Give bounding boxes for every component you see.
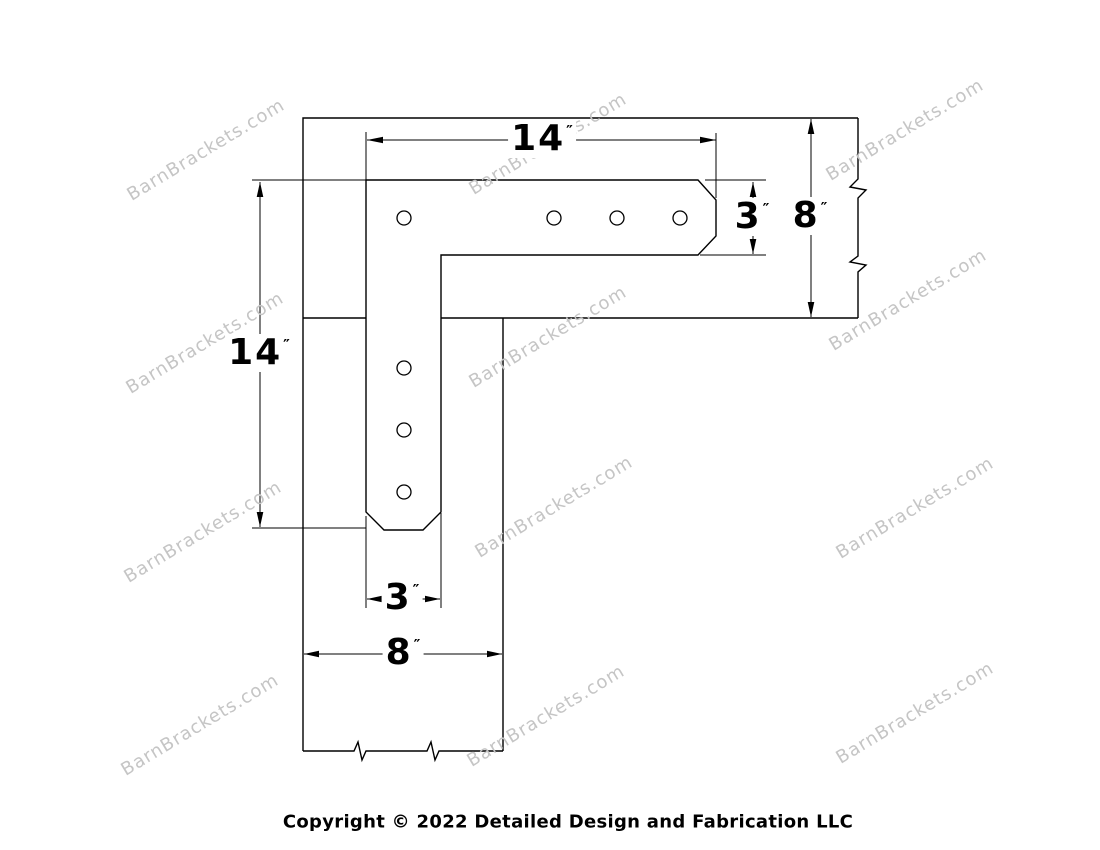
inch-mark: ″ (414, 636, 421, 654)
dim-label-right-beam-depth: 8″ (790, 197, 831, 235)
arrowhead (808, 302, 815, 317)
dim-label-bottom-beam-width: 8″ (383, 634, 424, 672)
dim-label-bottom-arm-width: 3″ (382, 579, 423, 617)
arrowhead (750, 182, 757, 197)
copyright-text: Copyright © 2022 Detailed Design and Fab… (283, 812, 853, 833)
bolt-hole (673, 211, 687, 225)
arrowhead (808, 119, 815, 134)
dim-value: 14 (511, 118, 565, 159)
inch-mark: ″ (413, 581, 420, 599)
dim-value: 14 (228, 332, 282, 373)
bolt-hole (397, 485, 411, 499)
arrowhead (367, 137, 383, 143)
bolt-hole (547, 211, 561, 225)
drawing-page: BarnBrackets.comBarnBrackets.comBarnBrac… (0, 0, 1100, 850)
arrowhead (304, 651, 319, 657)
dim-value: 3 (735, 196, 762, 237)
arrowhead (257, 182, 264, 197)
bolt-hole (610, 211, 624, 225)
dim-label-right-arm-depth: 3″ (732, 198, 773, 236)
inch-mark: ″ (821, 199, 828, 217)
vertical-beam-bottom-edge-with-break-marks (303, 742, 503, 760)
bolt-hole (397, 423, 411, 437)
bolt-hole (397, 211, 411, 225)
arrowhead (700, 137, 716, 143)
arrowhead (425, 596, 440, 602)
inch-mark: ″ (283, 336, 290, 354)
l-bracket-outline (366, 180, 716, 530)
dim-label-top-width: 14″ (508, 120, 576, 158)
inch-mark: ″ (763, 200, 770, 218)
arrowhead (257, 512, 264, 527)
arrowhead (487, 651, 502, 657)
inch-mark: ″ (566, 122, 573, 140)
arrowhead (367, 596, 382, 602)
dim-value: 8 (793, 195, 820, 236)
beam-right-edge-with-break-marks (850, 118, 866, 318)
arrowhead (750, 239, 757, 254)
bolt-hole (397, 361, 411, 375)
dim-value: 3 (385, 577, 412, 618)
dim-value: 8 (386, 632, 413, 673)
dim-label-left-height: 14″ (225, 334, 293, 372)
